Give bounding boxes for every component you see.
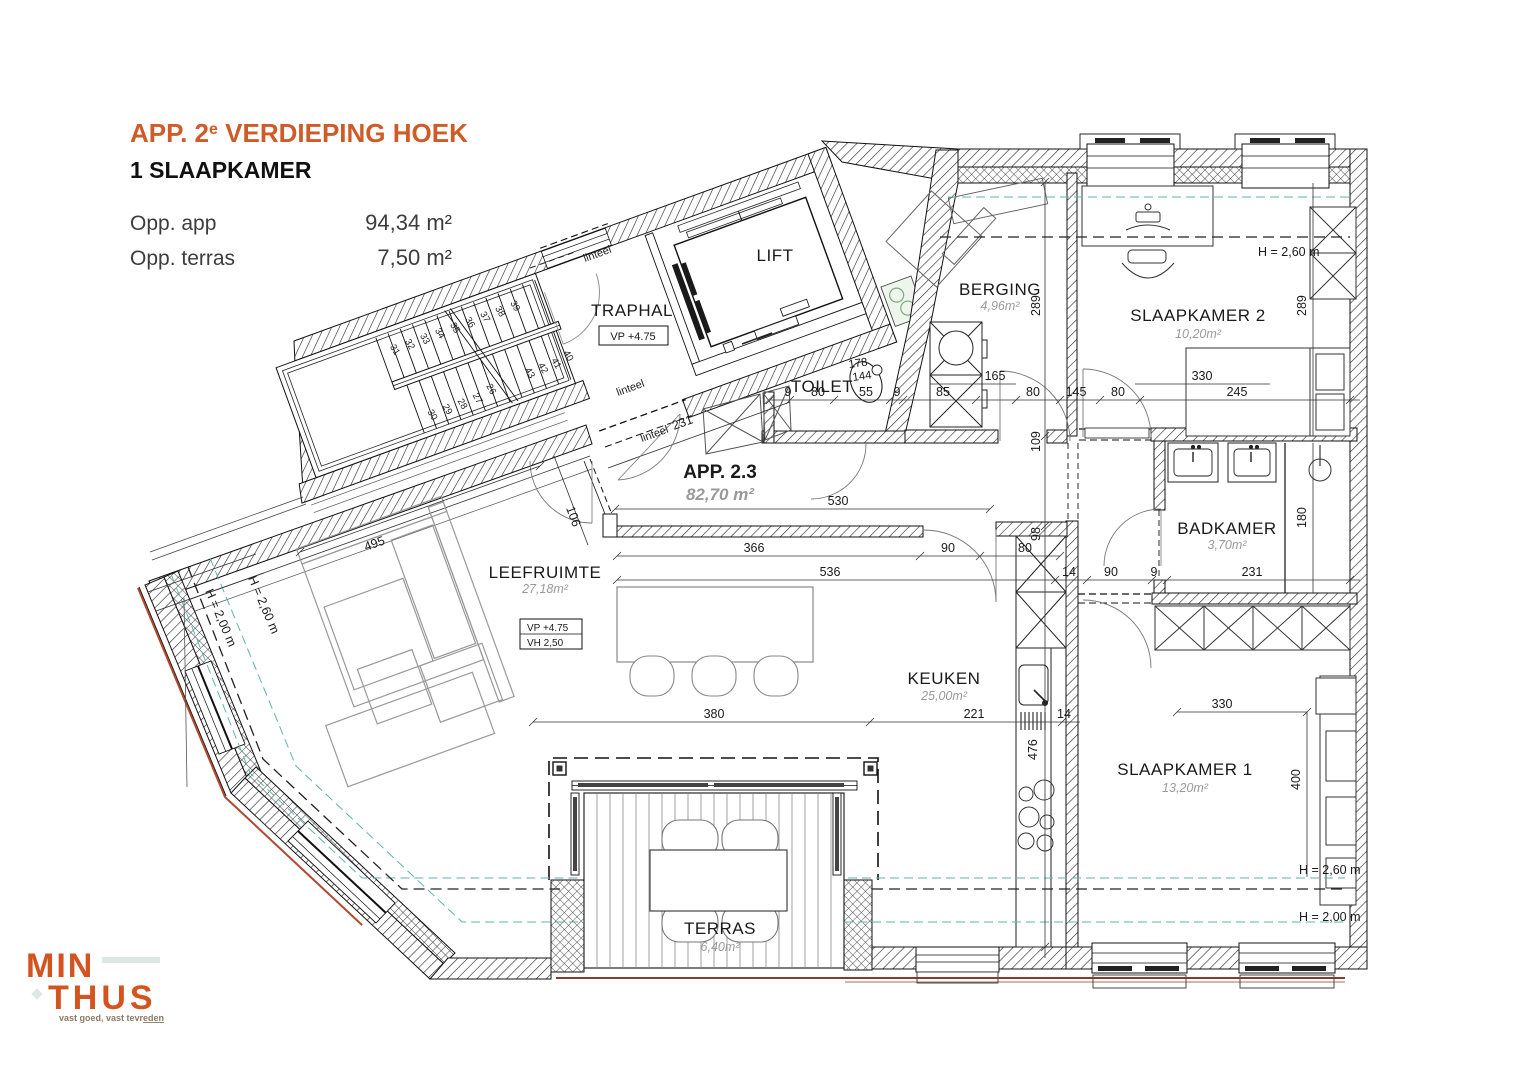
svg-text:vast goed, vast tevreden: vast goed, vast tevreden <box>59 1013 164 1023</box>
svg-text:231: 231 <box>1242 565 1263 579</box>
svg-text:85: 85 <box>936 385 950 399</box>
svg-text:330: 330 <box>1192 369 1213 383</box>
svg-text:9: 9 <box>894 385 901 399</box>
svg-text:Opp. app: Opp. app <box>130 212 216 235</box>
svg-text:13,20m²: 13,20m² <box>1162 781 1209 795</box>
svg-text:H = 2,60 m: H = 2,60 m <box>1299 863 1361 877</box>
svg-text:VH 2,50: VH 2,50 <box>527 638 564 649</box>
svg-text:SLAAPKAMER 2: SLAAPKAMER 2 <box>1130 306 1265 325</box>
svg-text:145: 145 <box>1066 385 1087 399</box>
svg-text:9: 9 <box>1151 565 1158 579</box>
svg-text:VP +4.75: VP +4.75 <box>610 331 655 343</box>
svg-text:536: 536 <box>820 565 841 579</box>
svg-text:7,50 m²: 7,50 m² <box>377 245 452 270</box>
svg-text:180: 180 <box>1295 507 1309 528</box>
svg-text:1 SLAAPKAMER: 1 SLAAPKAMER <box>130 157 312 183</box>
svg-text:BADKAMER: BADKAMER <box>1177 519 1276 538</box>
svg-text:94,34 m²: 94,34 m² <box>365 210 452 235</box>
svg-text:APP. 2.3: APP. 2.3 <box>683 462 757 483</box>
svg-text:H = 2,00 m: H = 2,00 m <box>1299 910 1361 924</box>
svg-text:SLAAPKAMER 1: SLAAPKAMER 1 <box>1117 760 1252 779</box>
svg-text:90: 90 <box>941 541 955 555</box>
svg-text:Opp. terras: Opp. terras <box>130 247 235 270</box>
svg-text:380: 380 <box>704 707 725 721</box>
svg-text:289: 289 <box>1295 295 1309 316</box>
svg-text:165: 165 <box>985 369 1006 383</box>
svg-text:LEEFRUIMTE: LEEFRUIMTE <box>489 563 602 582</box>
svg-text:289: 289 <box>1029 295 1043 316</box>
svg-text:530: 530 <box>828 494 849 508</box>
svg-text:TRAPHAL: TRAPHAL <box>591 301 673 320</box>
svg-text:82,70 m²: 82,70 m² <box>686 485 755 504</box>
svg-text:80: 80 <box>1018 541 1032 555</box>
svg-text:14: 14 <box>1057 707 1071 721</box>
svg-text:LIFT: LIFT <box>757 246 794 265</box>
svg-text:330: 330 <box>1212 697 1233 711</box>
svg-text:KEUKEN: KEUKEN <box>908 669 981 688</box>
svg-text:109: 109 <box>1029 431 1043 452</box>
svg-text:80: 80 <box>1111 385 1125 399</box>
svg-text:400: 400 <box>1289 769 1303 790</box>
svg-text:THUS: THUS <box>48 979 157 1017</box>
svg-text:476: 476 <box>1026 739 1040 760</box>
svg-text:55: 55 <box>859 385 873 399</box>
svg-text:3,70m²: 3,70m² <box>1208 538 1248 552</box>
svg-text:APP. 2e VERDIEPING HOEK: APP. 2e VERDIEPING HOEK <box>130 118 468 148</box>
svg-text:245: 245 <box>1227 385 1248 399</box>
svg-text:25,00m²: 25,00m² <box>920 689 968 703</box>
svg-text:221: 221 <box>964 707 985 721</box>
svg-text:80: 80 <box>1026 385 1040 399</box>
svg-text:80: 80 <box>811 385 825 399</box>
svg-text:27,18m²: 27,18m² <box>521 582 569 596</box>
svg-text:14: 14 <box>1062 565 1076 579</box>
svg-text:366: 366 <box>744 541 765 555</box>
svg-text:98: 98 <box>1029 527 1043 541</box>
svg-text:10,20m²: 10,20m² <box>1175 327 1222 341</box>
svg-text:VP +4.75: VP +4.75 <box>527 623 569 634</box>
svg-text:9: 9 <box>785 385 792 399</box>
svg-text:6,40m²: 6,40m² <box>701 940 741 954</box>
svg-text:90: 90 <box>1104 565 1118 579</box>
svg-text:H = 2,60 m: H = 2,60 m <box>1258 245 1320 259</box>
svg-text:4,96m²: 4,96m² <box>981 299 1021 313</box>
svg-text:TERRAS: TERRAS <box>684 919 756 938</box>
